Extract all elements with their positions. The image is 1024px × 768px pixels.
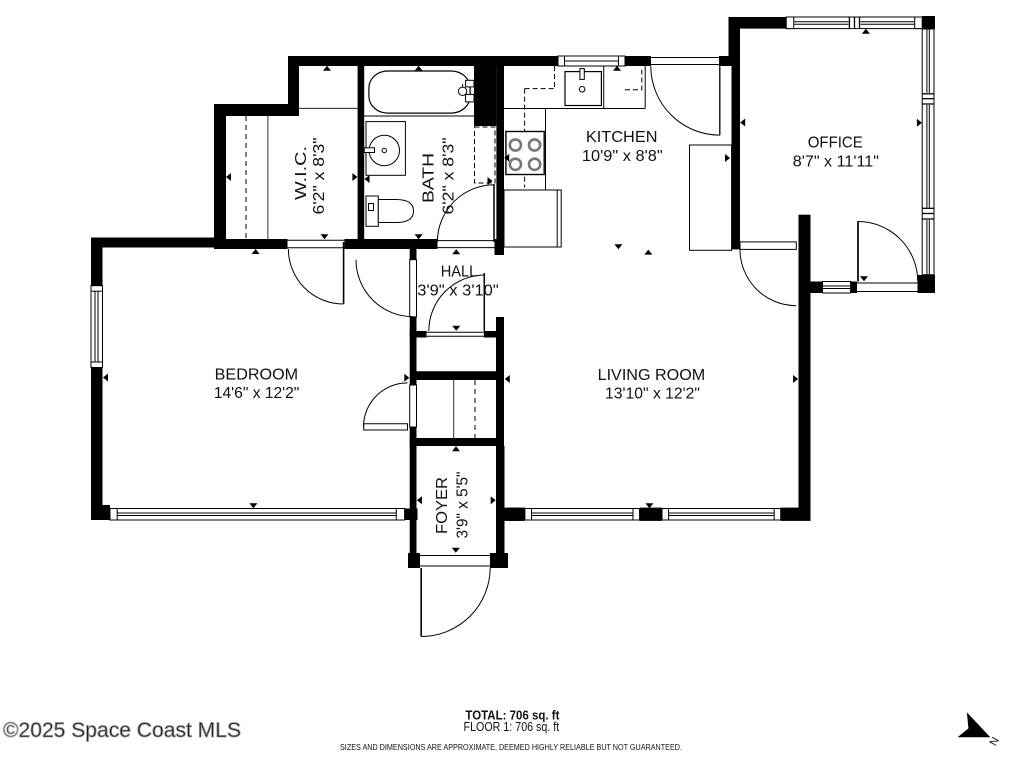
- svg-text:©2025 Space Coast MLS: ©2025 Space Coast MLS: [3, 719, 241, 742]
- svg-text:3'9" x 3'10": 3'9" x 3'10": [417, 283, 499, 300]
- svg-text:8'7" x 11'11": 8'7" x 11'11": [793, 154, 879, 171]
- svg-text:W.I.C.: W.I.C.: [293, 146, 310, 200]
- svg-text:14'6" x 12'2": 14'6" x 12'2": [214, 385, 300, 402]
- svg-text:6'2" x 8'3": 6'2" x 8'3": [311, 138, 328, 215]
- svg-text:BEDROOM: BEDROOM: [215, 366, 299, 383]
- svg-text:OFFICE: OFFICE: [808, 135, 863, 152]
- svg-text:LIVING ROOM: LIVING ROOM: [598, 367, 706, 384]
- svg-text:HALL: HALL: [441, 264, 478, 281]
- svg-text:FLOOR 1: 706 sq. ft: FLOOR 1: 706 sq. ft: [464, 720, 560, 734]
- svg-text:6'2" x 8'3": 6'2" x 8'3": [441, 138, 458, 215]
- svg-text:KITCHEN: KITCHEN: [586, 129, 658, 146]
- svg-text:BATH: BATH: [421, 153, 438, 203]
- svg-text:3'9" x 5'5": 3'9" x 5'5": [455, 472, 472, 539]
- svg-text:FOYER: FOYER: [434, 477, 451, 534]
- svg-text:SIZES AND DIMENSIONS ARE APPRO: SIZES AND DIMENSIONS ARE APPROXIMATE, DE…: [340, 742, 682, 752]
- svg-text:10'9" x 8'8": 10'9" x 8'8": [582, 148, 663, 165]
- svg-text:13'10" x 12'2": 13'10" x 12'2": [605, 386, 700, 403]
